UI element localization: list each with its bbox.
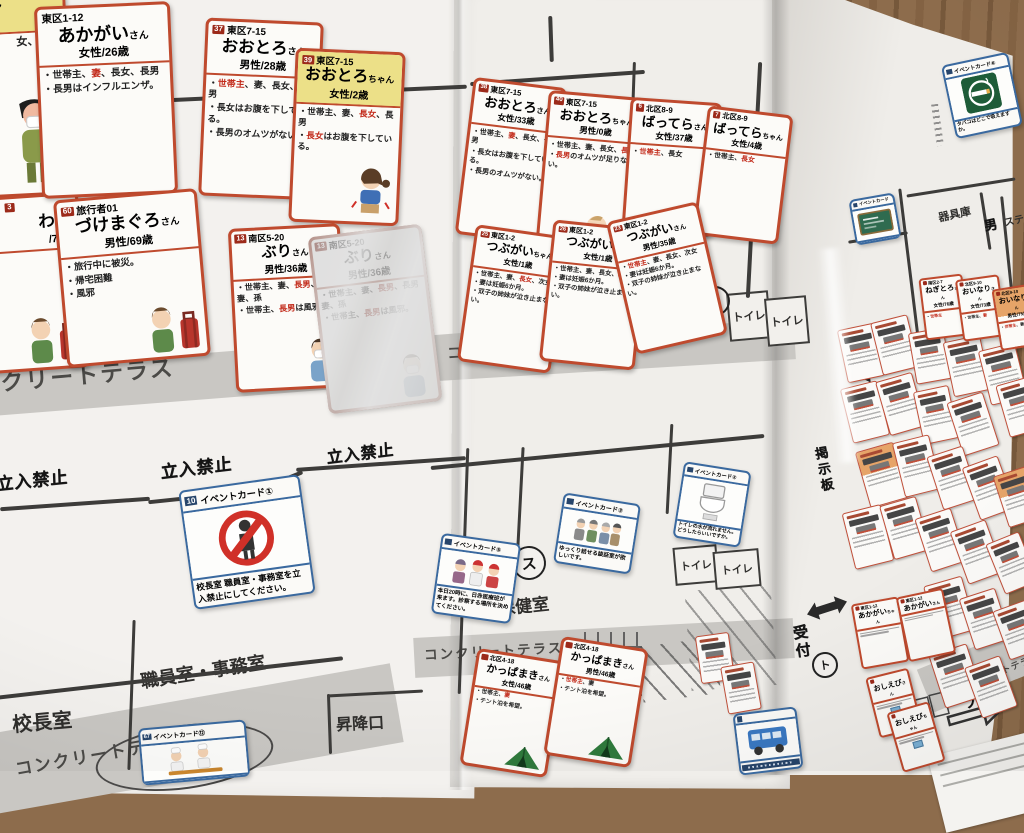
event-card-title: イベントカード⑫ <box>153 727 205 741</box>
man-suitcase-icon <box>140 303 206 356</box>
board-icon <box>852 205 899 243</box>
card-number-badge <box>566 498 574 505</box>
tent-icon <box>501 740 547 772</box>
event-card[interactable] <box>732 706 803 775</box>
card-number-badge <box>481 654 488 661</box>
card-number-badge: 13 <box>235 235 247 244</box>
bus-icon <box>736 719 800 764</box>
photo-of-hug-shelter-game-board: { "labels": { "no_entry": "立入禁止", "terra… <box>0 0 1024 771</box>
family-card[interactable]: 60旅行者01づけまぐろさん男性/69歳・旅行中に被災。・帰宅困難・風邪 <box>53 188 211 368</box>
toilet-cell: トイレ <box>712 548 761 590</box>
card-number-badge: 60 <box>60 207 74 218</box>
family-card[interactable]: 東区1-12あかがいさん女性/26歳・世帯主、妻、長女、長男・長男はインフルエン… <box>34 1 178 199</box>
card-number-badge <box>853 203 858 208</box>
tent-icon <box>584 730 630 762</box>
card-notes: ・世帯主、妻、長男、長男妻、孫・世帯主、長男は風邪。 <box>317 277 429 329</box>
room-label-principal: 校長室 <box>11 703 73 737</box>
card-address: 東区7-15 <box>227 25 266 38</box>
card-address: 南区5-20 <box>248 232 284 244</box>
toilet-cell: トイレ <box>764 295 810 346</box>
family-card[interactable]: 7北区8-9ばってらちゃん女性/4歳・世帯主、長女 <box>692 105 793 245</box>
card-notes: ・世帯主、妻、長女、長男・長男はインフルエンザ。 <box>40 63 171 102</box>
card-number-badge: 40 <box>554 97 565 105</box>
event-card[interactable]: イベントカード⑤本日20時に、日赤医療班が来ます。診察する場所を決めてください。 <box>431 533 521 624</box>
card-number-badge <box>946 69 953 76</box>
cooks-icon <box>141 737 248 783</box>
event-card[interactable]: 67イベントカード⑫ <box>138 719 251 785</box>
card-number-badge: 7 <box>713 111 721 119</box>
room-label-entrance: 昇降口 <box>335 709 384 735</box>
card-number-badge: 3 <box>4 203 15 213</box>
card-address: 東区7-15 <box>316 55 354 67</box>
card-number-badge: 38 <box>478 84 489 93</box>
card-number-badge: 23 <box>613 225 623 234</box>
card-number-badge <box>687 466 694 472</box>
family-card-header: 39東区7-15おおとろちゃん女性/2歳 <box>296 51 402 108</box>
card-number-badge: 25 <box>480 231 490 239</box>
family-card-header: 東区1-12あかがいさん女性/26歳 <box>37 4 169 68</box>
toilet-cell: トイレ <box>672 544 719 586</box>
event-card[interactable]: イベントカード <box>848 192 901 245</box>
family-card[interactable]: 北区4-18かっぱまきさん男性/46歳・世帯主、妻・テント泊を希望。 <box>543 636 649 768</box>
card-number-badge <box>737 716 743 722</box>
girl-icon <box>347 165 395 221</box>
card-address: 南区5-20 <box>328 236 365 250</box>
card-number-badge: 37 <box>212 25 225 35</box>
card-number-badge: 13 <box>315 242 327 252</box>
card-name: ぶりさん <box>316 242 418 272</box>
card-address: 東区1-12 <box>41 12 84 26</box>
card-number-badge: 6 <box>636 104 645 112</box>
card-number-badge: 26 <box>558 226 568 234</box>
family-card-laminated[interactable]: 13南区5-20ぶりさん男性/36歳・世帯主、妻、長男、長男妻、孫・世帯主、長男… <box>308 224 443 415</box>
event-card[interactable]: 10イベントカード①校長室 職員室・事務室を立入禁止にしてください。 <box>178 474 316 610</box>
card-address: 北区8-9 <box>646 104 673 115</box>
card-number-badge <box>445 538 453 545</box>
event-card[interactable]: イベントカード②トイレの水が流れません。どうしたらいいですか。 <box>672 461 751 548</box>
card-number-badge: 67 <box>142 733 151 740</box>
card-illustration <box>913 739 924 748</box>
family-card[interactable]: 39東区7-15おおとろちゃん女性/2歳・世帯主、妻、長女、長男・長女はお腹を下… <box>288 48 405 227</box>
card-number-badge <box>566 642 573 649</box>
card-gender-age: 男性/36歳 <box>318 259 420 287</box>
card-number-badge: 39 <box>302 55 314 64</box>
man-mask-icon <box>392 350 437 401</box>
card-number-badge: 10 <box>184 495 197 506</box>
family-card-header: 13南区5-20ぶりさん男性/36歳 <box>311 227 424 290</box>
card-notes: ・世帯主、妻、長女、長男・長女はお腹を下している。 <box>294 104 400 160</box>
event-card[interactable]: イベントカード③ゆっくり話せる談話室が欲しいです。 <box>553 492 641 575</box>
family-card-header: 北区9-10おいなりさん男性/75歳 <box>994 285 1024 324</box>
